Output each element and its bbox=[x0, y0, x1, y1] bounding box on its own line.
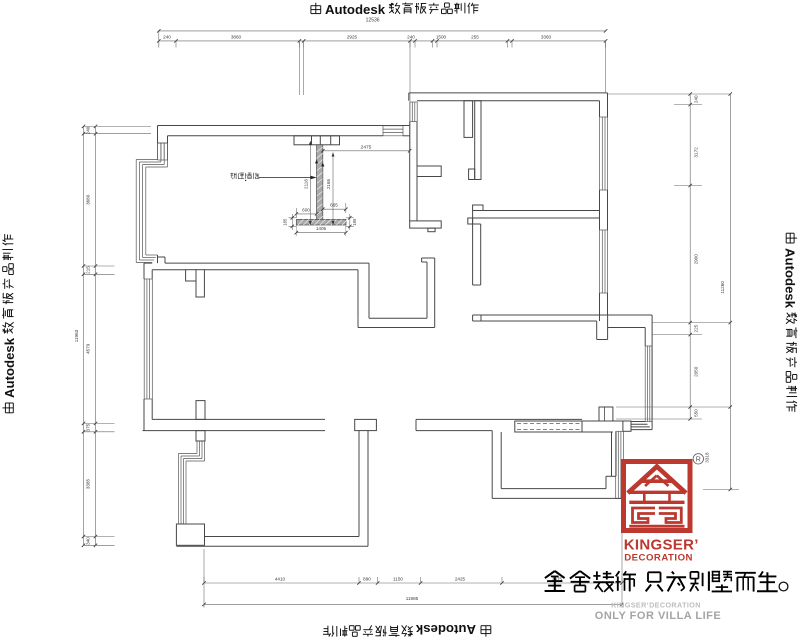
svg-text:3318: 3318 bbox=[705, 452, 710, 463]
svg-text:255: 255 bbox=[471, 35, 479, 40]
svg-text:240: 240 bbox=[694, 95, 699, 103]
svg-text:3385: 3385 bbox=[85, 478, 90, 489]
svg-text:11260: 11260 bbox=[720, 281, 725, 294]
svg-text:KINGSER’DECORATION: KINGSER’DECORATION bbox=[611, 600, 701, 609]
svg-text:600: 600 bbox=[302, 207, 310, 212]
svg-text:3860: 3860 bbox=[231, 35, 242, 40]
svg-text:2116: 2116 bbox=[303, 179, 308, 189]
svg-text:4410: 4410 bbox=[275, 577, 286, 582]
svg-text:550: 550 bbox=[694, 409, 699, 417]
svg-text:Autodesk: Autodesk bbox=[325, 2, 386, 17]
svg-text:185: 185 bbox=[283, 218, 288, 226]
svg-text:1405: 1405 bbox=[316, 226, 327, 231]
svg-text:240: 240 bbox=[407, 35, 415, 40]
svg-text:375: 375 bbox=[85, 423, 90, 431]
svg-text:4579: 4579 bbox=[85, 343, 90, 354]
svg-text:2165: 2165 bbox=[326, 178, 331, 189]
svg-text:2425: 2425 bbox=[455, 577, 466, 582]
svg-text:185: 185 bbox=[352, 218, 357, 226]
svg-text:2475: 2475 bbox=[361, 144, 372, 150]
svg-text:DECORATION: DECORATION bbox=[624, 552, 693, 563]
svg-text:340: 340 bbox=[85, 537, 90, 545]
svg-text:890: 890 bbox=[363, 577, 371, 582]
svg-text:11985: 11985 bbox=[406, 596, 419, 601]
svg-text:665: 665 bbox=[330, 203, 338, 208]
svg-text:240: 240 bbox=[163, 35, 171, 40]
svg-text:12536: 12536 bbox=[366, 18, 380, 24]
svg-text:225: 225 bbox=[694, 324, 699, 332]
svg-text:3680: 3680 bbox=[85, 194, 90, 205]
svg-text:240: 240 bbox=[85, 126, 90, 134]
svg-text:Autodesk: Autodesk bbox=[415, 622, 476, 637]
svg-text:R: R bbox=[696, 456, 701, 463]
svg-text:2925: 2925 bbox=[347, 35, 358, 40]
svg-text:KINGSER’: KINGSER’ bbox=[624, 537, 699, 554]
svg-text:1500: 1500 bbox=[436, 35, 447, 40]
svg-text:3360: 3360 bbox=[541, 35, 552, 40]
svg-text:2050: 2050 bbox=[694, 366, 699, 377]
svg-text:Autodesk: Autodesk bbox=[2, 337, 17, 398]
svg-text:11963: 11963 bbox=[74, 329, 79, 342]
svg-text:2900: 2900 bbox=[694, 254, 699, 265]
svg-text:1150: 1150 bbox=[393, 577, 403, 582]
svg-text:ONLY FOR VILLA LIFE: ONLY FOR VILLA LIFE bbox=[595, 610, 721, 622]
svg-text:3172: 3172 bbox=[694, 147, 699, 158]
svg-text:215: 215 bbox=[85, 266, 90, 274]
svg-text:Autodesk: Autodesk bbox=[783, 248, 798, 309]
